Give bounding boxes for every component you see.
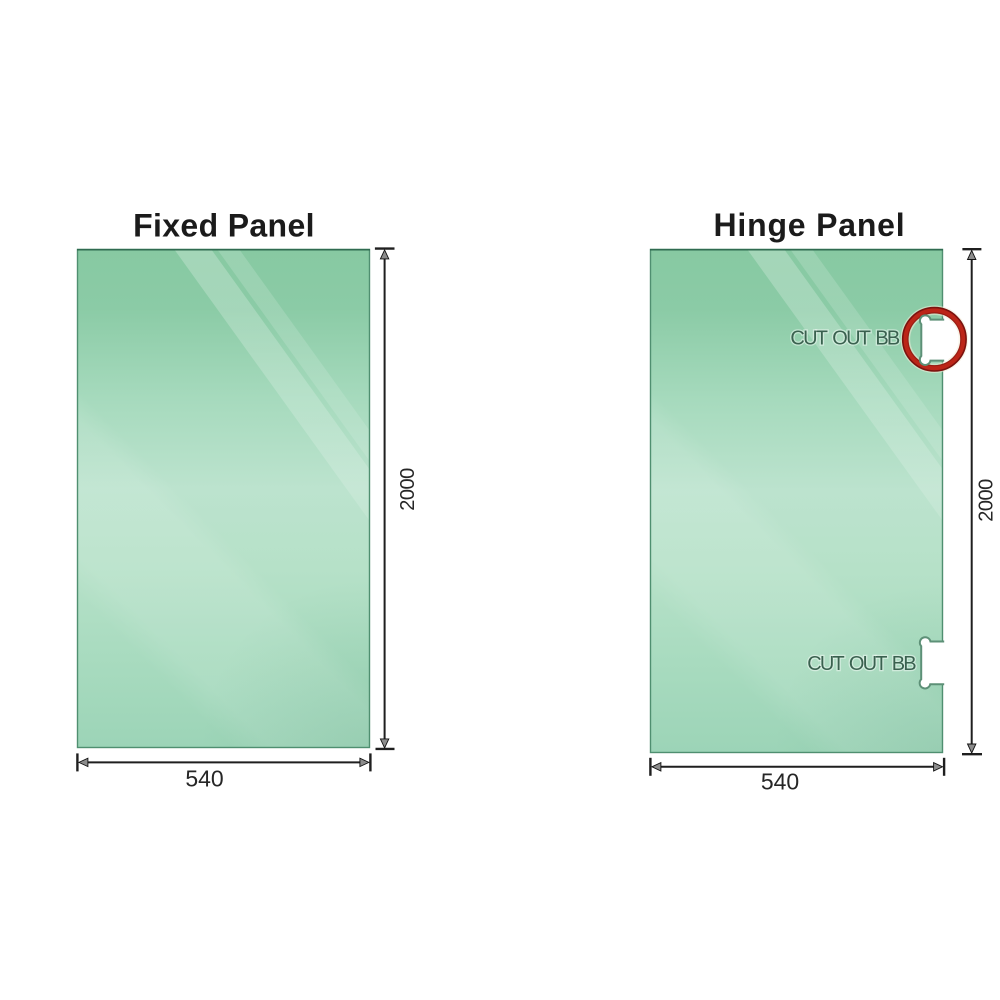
svg-text:CUT OUT BB: CUT OUT BB <box>807 653 916 675</box>
svg-text:540: 540 <box>761 769 799 795</box>
svg-text:Hinge Panel: Hinge Panel <box>714 207 906 243</box>
svg-text:2000: 2000 <box>397 468 419 511</box>
svg-text:2000: 2000 <box>975 479 997 522</box>
svg-text:Fixed Panel: Fixed Panel <box>133 208 315 244</box>
svg-text:540: 540 <box>185 766 223 792</box>
svg-text:CUT OUT BB: CUT OUT BB <box>790 328 900 350</box>
